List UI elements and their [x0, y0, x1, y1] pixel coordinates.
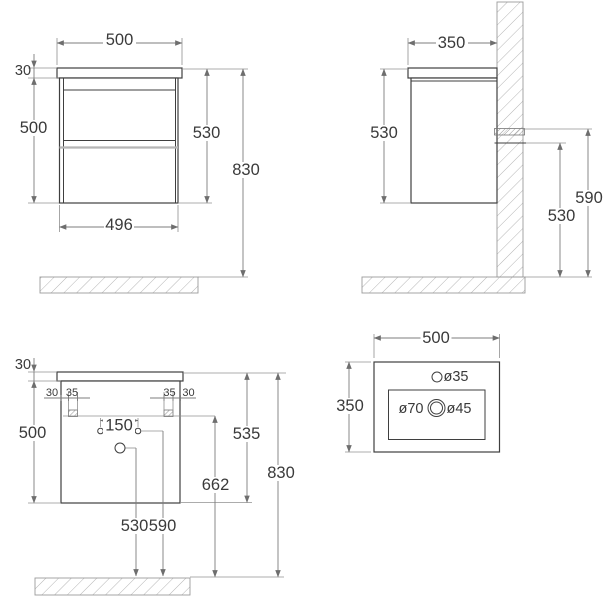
front-view: 500 30 500 530 830 496 — [15, 31, 261, 293]
dim-label-back-drain-height: 530 — [121, 517, 149, 535]
dim-label-front-body-height: 500 — [20, 119, 48, 137]
back-countertop — [57, 372, 183, 381]
dim-label-back-top-thickness: 30 — [15, 357, 31, 373]
dim-label-front-overall-height: 830 — [232, 161, 260, 179]
dim-label-faucet-hole-diameter: ø35 — [444, 369, 469, 385]
dim-label-side-hanger-bottom-height: 530 — [548, 207, 576, 225]
dim-label-drain-hole-diameter: ø45 — [447, 401, 472, 417]
dim-label-side-hanger-top-height: 590 — [575, 189, 603, 207]
side-floor-hatch — [362, 277, 525, 293]
side-view: 350 530 590 530 — [362, 2, 604, 293]
side-countertop — [408, 68, 497, 78]
technical-drawing-page: 500 30 500 530 830 496 350 530 590 — [0, 0, 607, 600]
front-countertop — [57, 68, 182, 78]
dim-label-side-cabinet-height: 530 — [370, 124, 398, 142]
side-wall-hanger — [495, 129, 525, 136]
dim-label-front-top-thickness: 30 — [15, 63, 31, 79]
dim-label-back-supply-spacing: 150 — [105, 417, 133, 435]
dim-label-back-hanger-offset-right: 30 — [182, 387, 194, 399]
front-floor-hatch — [40, 277, 198, 293]
washbasin-top-view: 500 350 ø35 ø70 ø45 — [335, 329, 500, 452]
dim-label-basin-depth: 350 — [336, 397, 364, 415]
dim-label-back-body-height: 500 — [19, 424, 47, 442]
back-hanger-right — [164, 410, 173, 417]
dim-label-back-front-edge-height: 535 — [233, 425, 261, 443]
dim-label-drain-recess-diameter: ø70 — [399, 401, 424, 417]
back-cabinet-body — [61, 381, 180, 503]
dim-label-front-width-bottom: 496 — [105, 216, 133, 234]
vanity-cabinet-drawing: 500 30 500 530 830 496 350 530 590 — [0, 0, 607, 600]
side-cabinet-body — [411, 78, 497, 203]
dim-label-side-depth: 350 — [438, 34, 466, 52]
basin-outline — [374, 362, 500, 452]
dim-label-back-hanger-offset-left: 30 — [46, 387, 58, 399]
dim-label-back-overall-height: 830 — [267, 464, 295, 482]
dim-label-back-hanger-height: 662 — [202, 476, 230, 494]
dim-label-back-hanger-width-right: 35 — [163, 387, 175, 399]
dim-label-back-supply-height: 590 — [149, 517, 177, 535]
back-hanger-left — [69, 410, 78, 417]
dim-label-front-cabinet-height: 530 — [193, 124, 221, 142]
back-view: 30 500 30 35 35 30 150 530 590 535 662 8… — [15, 357, 296, 595]
dim-label-back-hanger-width-left: 35 — [66, 387, 78, 399]
dim-label-front-width-top: 500 — [106, 31, 134, 49]
dim-label-basin-width: 500 — [422, 329, 450, 347]
side-wall-hatch — [497, 2, 523, 277]
back-floor-hatch — [35, 578, 190, 595]
